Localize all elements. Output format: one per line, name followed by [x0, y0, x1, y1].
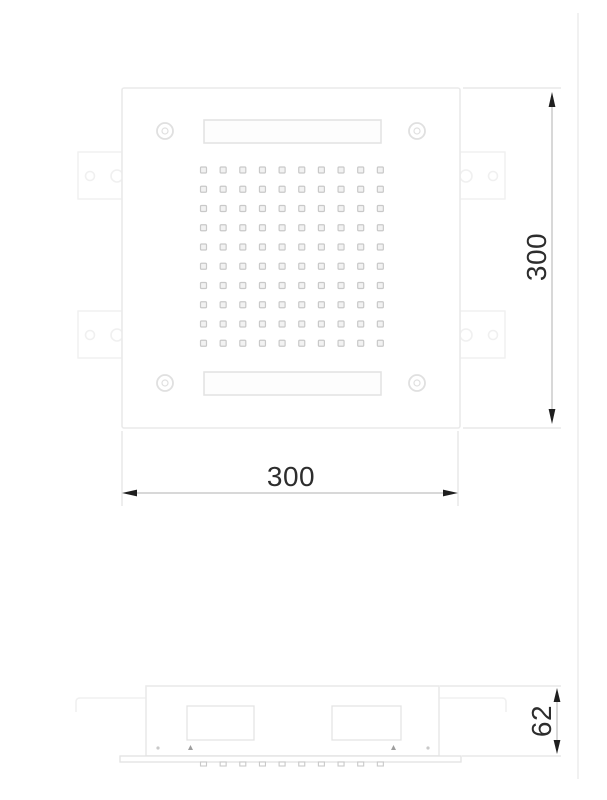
nozzle-hole — [358, 283, 364, 289]
nozzle-hole — [201, 244, 207, 250]
nozzle-hole — [338, 167, 344, 173]
nozzle-hole — [259, 321, 265, 327]
nozzle-hole — [259, 244, 265, 250]
nozzle-tick — [377, 762, 383, 766]
nozzle-hole — [299, 283, 305, 289]
waterfall-slot-bottom — [204, 372, 381, 395]
nozzle-hole — [318, 167, 324, 173]
nozzle-tick — [220, 762, 226, 766]
nozzle-hole — [318, 283, 324, 289]
nozzle-hole — [377, 263, 383, 269]
nozzle-hole — [377, 283, 383, 289]
vertical-dimension: 300 — [463, 88, 561, 428]
nozzle-hole — [240, 186, 246, 192]
nozzle-hole — [377, 321, 383, 327]
nozzle-hole — [201, 302, 207, 308]
nozzle-hole — [240, 244, 246, 250]
depth-dimension-label: 62 — [526, 705, 557, 737]
nozzle-hole — [377, 302, 383, 308]
nozzle-hole — [220, 186, 226, 192]
nozzle-hole — [318, 225, 324, 231]
nozzle-hole — [299, 225, 305, 231]
nozzle-hole — [259, 340, 265, 346]
nozzle-hole — [240, 321, 246, 327]
nozzle-hole — [201, 206, 207, 212]
arrow-up-icon — [549, 92, 556, 107]
nozzle-hole — [220, 206, 226, 212]
nozzle-hole — [358, 302, 364, 308]
tab-hole-icon — [86, 331, 95, 340]
nozzle-hole — [201, 321, 207, 327]
nozzle-tick — [318, 762, 324, 766]
side-view — [76, 686, 506, 766]
nozzle-hole — [220, 321, 226, 327]
nozzle-hole — [279, 225, 285, 231]
nozzle-hole — [358, 340, 364, 346]
screw-icon — [157, 375, 173, 391]
housing-body — [146, 686, 439, 756]
fastener-dot-icon — [426, 746, 429, 749]
nozzle-hole — [338, 186, 344, 192]
nozzle-hole — [358, 244, 364, 250]
screw-icon — [409, 375, 425, 391]
nozzle-hole — [299, 244, 305, 250]
top-view — [78, 88, 505, 428]
nozzle-hole — [318, 263, 324, 269]
nozzle-tick — [279, 762, 285, 766]
arrow-down-icon — [554, 740, 561, 754]
bracket-right — [439, 698, 506, 712]
nozzle-hole — [338, 321, 344, 327]
nozzle-hole — [299, 206, 305, 212]
nozzle-hole — [220, 302, 226, 308]
arrow-right-icon — [443, 490, 458, 497]
nozzle-tick — [338, 762, 344, 766]
nozzle-hole — [220, 263, 226, 269]
nozzle-hole — [259, 167, 265, 173]
nozzle-hole — [220, 225, 226, 231]
nozzle-hole — [259, 206, 265, 212]
tab-hole-icon — [489, 331, 498, 340]
nozzle-hole — [240, 167, 246, 173]
nozzle-hole — [377, 186, 383, 192]
nozzle-hole — [279, 186, 285, 192]
nozzle-hole — [240, 225, 246, 231]
nozzle-hole — [201, 283, 207, 289]
nozzle-hole — [201, 225, 207, 231]
nozzle-hole — [279, 283, 285, 289]
nozzle-hole — [279, 340, 285, 346]
depth-dimension: 62 — [440, 686, 561, 756]
nozzle-hole — [240, 283, 246, 289]
bracket-left — [76, 698, 146, 712]
arrow-down-icon — [549, 409, 556, 424]
nozzle-hole — [299, 302, 305, 308]
nozzle-hole — [299, 321, 305, 327]
nozzle-tick — [201, 762, 207, 766]
nozzle-hole — [299, 167, 305, 173]
nozzle-hole — [201, 167, 207, 173]
nozzle-hole — [358, 186, 364, 192]
screw-icon — [157, 123, 173, 139]
width-dimension-label: 300 — [267, 461, 315, 492]
tab-hole-icon — [86, 172, 95, 181]
nozzle-hole — [279, 263, 285, 269]
screw-icon — [409, 123, 425, 139]
tab-hole-icon — [460, 329, 472, 341]
waterfall-slot-top — [204, 120, 381, 143]
nozzle-hole — [358, 206, 364, 212]
tab-hole-icon — [489, 172, 498, 181]
nozzle-hole — [279, 244, 285, 250]
nozzle-tick — [240, 762, 246, 766]
nozzle-hole — [201, 340, 207, 346]
nozzle-hole — [299, 340, 305, 346]
nozzle-hole — [279, 321, 285, 327]
nozzle-hole — [299, 263, 305, 269]
nozzle-hole — [377, 340, 383, 346]
height-dimension-label: 300 — [521, 233, 552, 281]
nozzle-hole — [358, 263, 364, 269]
nozzle-hole — [318, 321, 324, 327]
technical-drawing: 300 300 62 — [0, 0, 607, 800]
nozzle-hole — [279, 302, 285, 308]
nozzle-hole — [318, 186, 324, 192]
nozzle-hole — [338, 244, 344, 250]
nozzle-hole — [259, 186, 265, 192]
nozzle-hole — [318, 340, 324, 346]
nozzle-hole — [201, 186, 207, 192]
drawing-canvas: 300 300 62 — [0, 0, 607, 800]
nozzle-hole — [220, 340, 226, 346]
nozzle-hole — [377, 167, 383, 173]
nozzle-tick — [259, 762, 265, 766]
nozzle-hole — [318, 302, 324, 308]
nozzle-hole — [358, 321, 364, 327]
nozzle-hole — [318, 244, 324, 250]
horizontal-dimension: 300 — [122, 431, 458, 506]
nozzle-hole — [338, 225, 344, 231]
nozzle-hole — [358, 167, 364, 173]
nozzle-hole — [220, 283, 226, 289]
nozzle-hole — [220, 167, 226, 173]
nozzle-hole — [279, 206, 285, 212]
nozzle-hole — [377, 225, 383, 231]
nozzle-hole — [338, 340, 344, 346]
fastener-dot-icon — [156, 746, 159, 749]
nozzle-hole — [358, 225, 364, 231]
face-plate — [120, 756, 461, 762]
nozzle-hole — [299, 186, 305, 192]
nozzle-hole — [377, 206, 383, 212]
nozzle-hole — [338, 283, 344, 289]
nozzle-hole — [338, 206, 344, 212]
nozzle-hole — [338, 263, 344, 269]
nozzle-hole — [220, 244, 226, 250]
nozzle-hole — [338, 302, 344, 308]
tab-hole-icon — [460, 170, 472, 182]
nozzle-hole — [259, 283, 265, 289]
nozzle-hole — [259, 302, 265, 308]
arrow-left-icon — [122, 490, 137, 497]
nozzle-hole — [240, 302, 246, 308]
nozzle-hole — [279, 167, 285, 173]
nozzle-hole — [259, 225, 265, 231]
arrow-up-icon — [554, 688, 561, 702]
nozzle-tick — [299, 762, 305, 766]
nozzle-hole — [201, 263, 207, 269]
nozzle-hole — [240, 206, 246, 212]
nozzle-tick — [358, 762, 364, 766]
nozzle-hole — [240, 340, 246, 346]
nozzle-hole — [259, 263, 265, 269]
nozzle-hole — [377, 244, 383, 250]
nozzle-hole — [240, 263, 246, 269]
nozzle-hole — [318, 206, 324, 212]
